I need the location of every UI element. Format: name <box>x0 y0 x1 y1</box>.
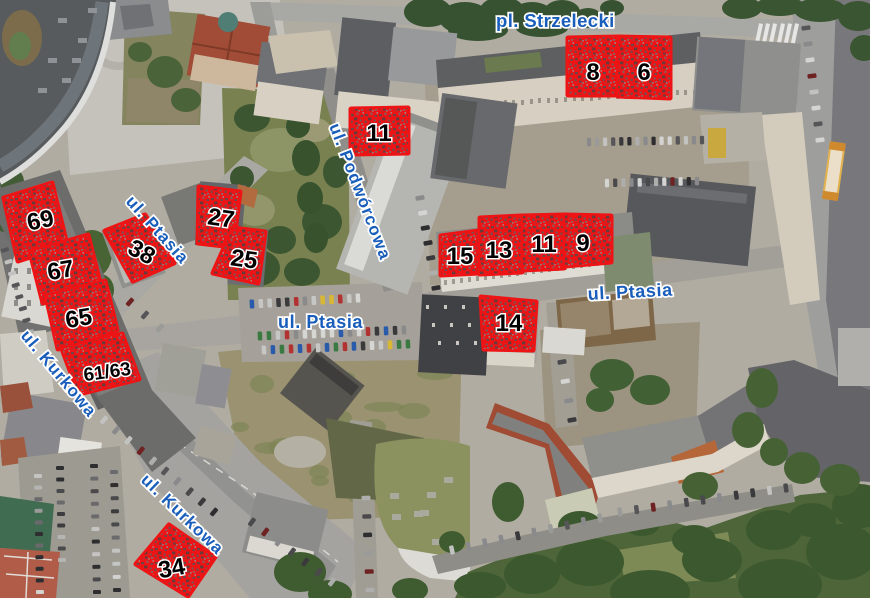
svg-text:6: 6 <box>637 59 650 86</box>
svg-text:14: 14 <box>496 310 523 337</box>
svg-text:pl. Strzelecki: pl. Strzelecki <box>496 10 615 31</box>
svg-text:ul. Ptasia: ul. Ptasia <box>278 312 363 332</box>
svg-text:25: 25 <box>229 244 259 274</box>
svg-text:65: 65 <box>63 303 94 334</box>
svg-text:13: 13 <box>486 237 513 264</box>
svg-text:11: 11 <box>366 120 391 147</box>
svg-text:67: 67 <box>45 255 76 286</box>
svg-text:27: 27 <box>206 203 236 233</box>
svg-text:11: 11 <box>531 231 556 258</box>
svg-text:9: 9 <box>576 230 589 257</box>
svg-text:69: 69 <box>25 205 57 237</box>
svg-text:8: 8 <box>586 59 599 86</box>
svg-text:15: 15 <box>447 243 474 270</box>
svg-text:34: 34 <box>156 553 188 584</box>
